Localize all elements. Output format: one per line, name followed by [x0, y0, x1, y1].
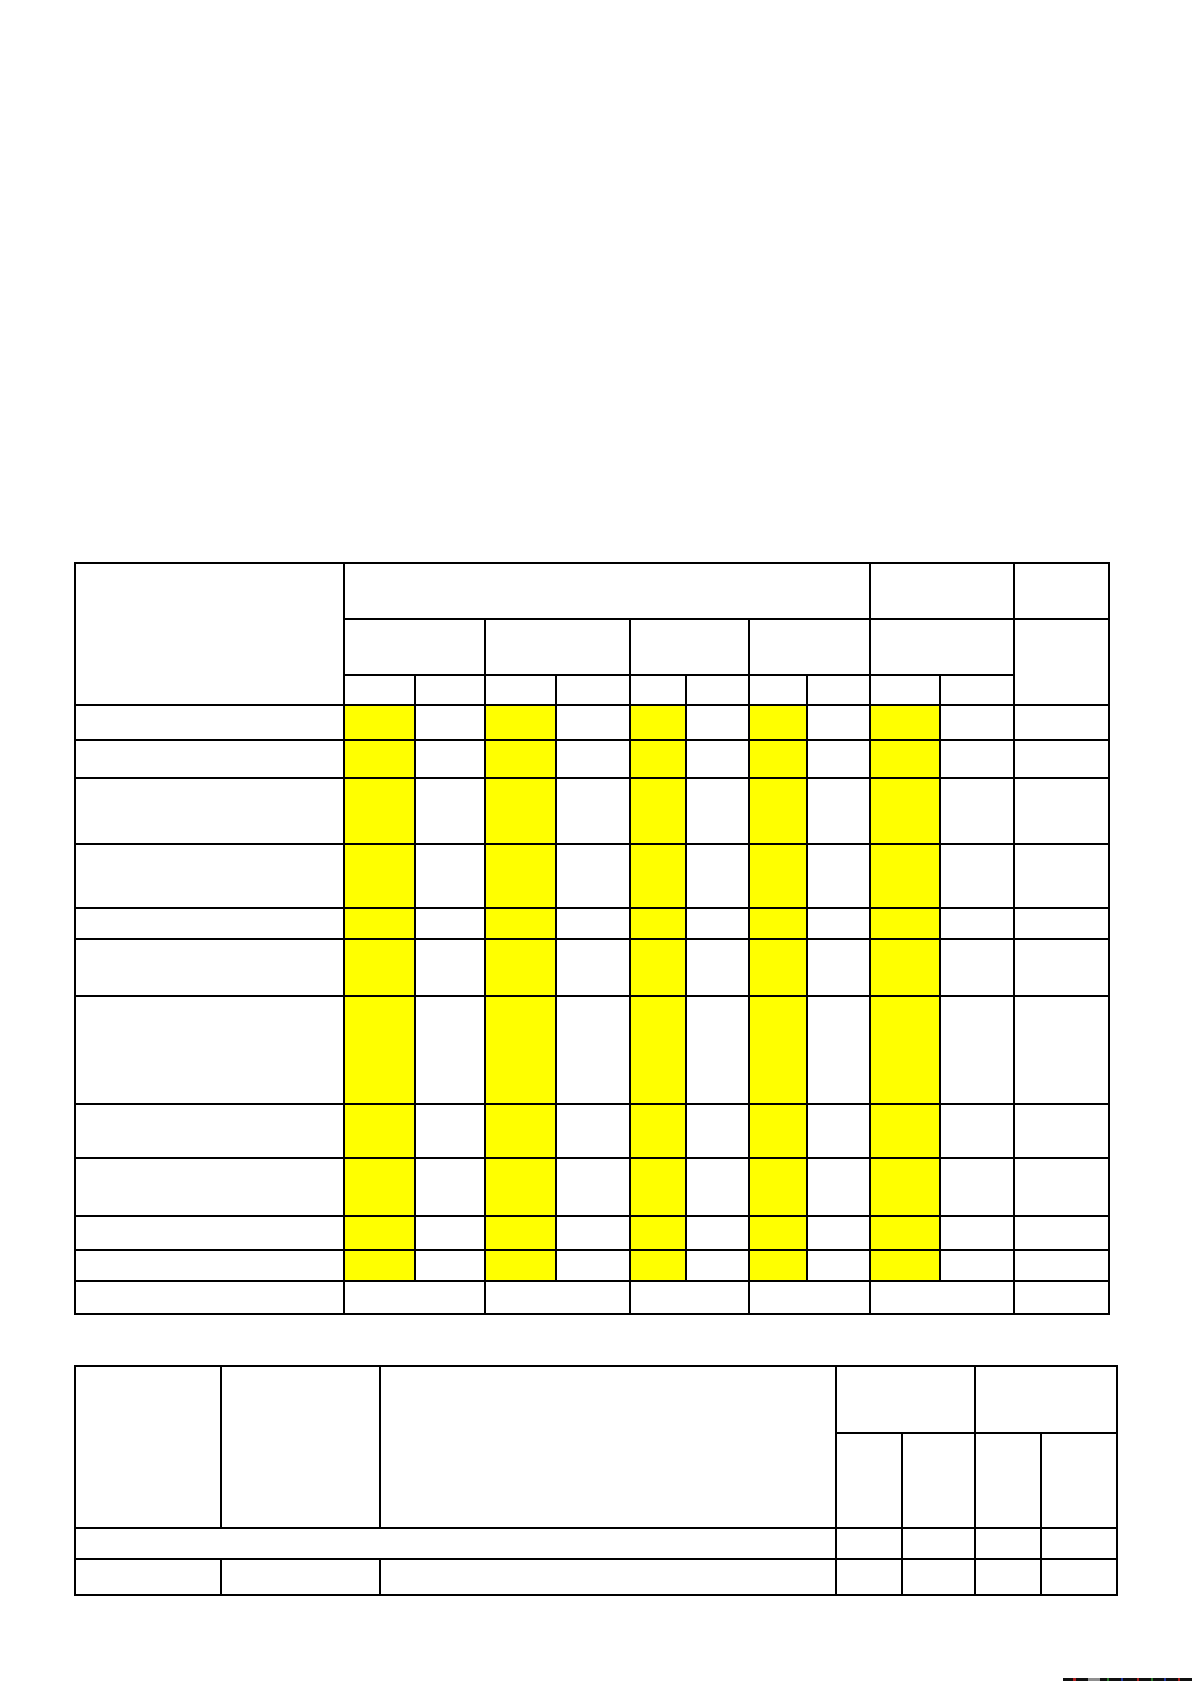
edge-strip-segment: [1137, 1678, 1139, 1681]
empty-cell: [836, 1528, 902, 1559]
empty-cell: [1014, 996, 1109, 1104]
empty-cell: [415, 1216, 485, 1250]
empty-cell: [807, 939, 870, 996]
empty-cell: [75, 1559, 221, 1595]
highlight-cell: [485, 1250, 556, 1281]
empty-cell: [75, 1158, 344, 1216]
empty-cell: [415, 1158, 485, 1216]
empty-cell: [75, 939, 344, 996]
header-cell: [344, 675, 415, 705]
empty-cell: [75, 844, 344, 908]
empty-cell: [902, 1433, 975, 1528]
empty-cell: [836, 1559, 902, 1595]
highlight-cell: [630, 1216, 686, 1250]
highlight-cell: [344, 908, 415, 939]
empty-cell: [940, 908, 1014, 939]
empty-cell: [807, 1250, 870, 1281]
empty-cell: [556, 844, 630, 908]
empty-cell: [807, 778, 870, 844]
edge-strip-segment: [1164, 1678, 1166, 1681]
empty-cell: [415, 1104, 485, 1158]
edge-strip-segment: [1121, 1678, 1123, 1681]
highlight-cell: [344, 1158, 415, 1216]
empty-cell: [686, 1158, 749, 1216]
empty-cell: [556, 778, 630, 844]
empty-cell: [940, 705, 1014, 740]
header-cell: [415, 675, 485, 705]
highlight-cell: [749, 908, 807, 939]
empty-cell: [686, 844, 749, 908]
header-cell: [556, 675, 630, 705]
highlight-cell: [630, 1158, 686, 1216]
highlight-cell: [485, 996, 556, 1104]
highlight-cell: [344, 740, 415, 778]
empty-cell: [75, 908, 344, 939]
highlight-cell: [630, 740, 686, 778]
highlight-cell: [344, 1250, 415, 1281]
header-cell: [485, 619, 630, 675]
empty-cell: [836, 1366, 975, 1433]
highlight-cell: [485, 778, 556, 844]
empty-cell: [221, 1366, 380, 1528]
highlight-cell: [749, 1104, 807, 1158]
empty-cell: [807, 1216, 870, 1250]
empty-cell: [902, 1528, 975, 1559]
highlight-cell: [870, 1158, 940, 1216]
highlight-cell: [749, 705, 807, 740]
empty-cell: [1014, 939, 1109, 996]
empty-cell: [1014, 705, 1109, 740]
edge-strip-segment: [1088, 1678, 1100, 1681]
header-cell: [630, 675, 686, 705]
empty-cell: [749, 1281, 870, 1314]
empty-cell: [556, 740, 630, 778]
empty-cell: [807, 844, 870, 908]
empty-cell: [940, 1158, 1014, 1216]
header-cell: [1014, 563, 1109, 619]
edge-strip-segment: [1178, 1678, 1180, 1681]
header-cell: [807, 675, 870, 705]
empty-cell: [415, 996, 485, 1104]
highlight-cell: [749, 1216, 807, 1250]
empty-cell: [686, 705, 749, 740]
highlight-cell: [749, 996, 807, 1104]
empty-cell: [686, 740, 749, 778]
header-cell: [870, 619, 1014, 675]
empty-cell: [940, 844, 1014, 908]
empty-cell: [686, 1216, 749, 1250]
highlight-cell: [749, 778, 807, 844]
main-grid-table: [74, 562, 1110, 1315]
empty-cell: [556, 1216, 630, 1250]
empty-cell: [556, 1158, 630, 1216]
edge-strip-segment: [1151, 1678, 1153, 1681]
empty-cell: [686, 778, 749, 844]
empty-cell: [1014, 1281, 1109, 1314]
empty-cell: [902, 1559, 975, 1595]
header-cell: [75, 563, 344, 705]
highlight-cell: [749, 939, 807, 996]
highlight-cell: [344, 996, 415, 1104]
header-cell: [344, 563, 870, 619]
empty-cell: [556, 705, 630, 740]
empty-cell: [940, 1104, 1014, 1158]
highlight-cell: [870, 908, 940, 939]
empty-cell: [1014, 1250, 1109, 1281]
empty-cell: [1041, 1528, 1117, 1559]
empty-cell: [415, 939, 485, 996]
highlight-cell: [870, 705, 940, 740]
header-cell: [344, 619, 485, 675]
header-cell: [485, 675, 556, 705]
empty-cell: [940, 996, 1014, 1104]
highlight-cell: [870, 1250, 940, 1281]
highlight-cell: [485, 844, 556, 908]
highlight-cell: [870, 844, 940, 908]
empty-cell: [1014, 1216, 1109, 1250]
empty-cell: [415, 1250, 485, 1281]
empty-cell: [1014, 778, 1109, 844]
highlight-cell: [344, 844, 415, 908]
empty-cell: [630, 1281, 749, 1314]
empty-cell: [415, 778, 485, 844]
highlight-cell: [485, 908, 556, 939]
empty-cell: [975, 1366, 1117, 1433]
highlight-cell: [485, 1104, 556, 1158]
empty-cell: [75, 1104, 344, 1158]
highlight-cell: [749, 1158, 807, 1216]
empty-cell: [686, 1104, 749, 1158]
header-cell: [1014, 619, 1109, 705]
highlight-cell: [870, 778, 940, 844]
empty-cell: [686, 996, 749, 1104]
empty-cell: [1041, 1433, 1117, 1528]
empty-cell: [75, 996, 344, 1104]
header-cell: [749, 675, 807, 705]
edge-strip-segment: [1107, 1678, 1109, 1681]
header-cell: [630, 619, 749, 675]
empty-cell: [1014, 1158, 1109, 1216]
empty-cell: [975, 1559, 1041, 1595]
highlight-cell: [344, 1104, 415, 1158]
empty-cell: [415, 844, 485, 908]
header-cell: [749, 619, 870, 675]
empty-cell: [556, 1104, 630, 1158]
empty-cell: [807, 705, 870, 740]
header-cell: [870, 675, 940, 705]
empty-cell: [940, 1216, 1014, 1250]
highlight-cell: [870, 1104, 940, 1158]
highlight-cell: [749, 740, 807, 778]
header-cell: [686, 675, 749, 705]
empty-cell: [415, 740, 485, 778]
empty-cell: [940, 740, 1014, 778]
highlight-cell: [630, 996, 686, 1104]
empty-cell: [1014, 1104, 1109, 1158]
empty-cell: [975, 1433, 1041, 1528]
empty-cell: [807, 996, 870, 1104]
header-cell: [870, 563, 1014, 619]
highlight-cell: [485, 939, 556, 996]
empty-cell: [75, 705, 344, 740]
empty-cell: [415, 908, 485, 939]
empty-cell: [75, 778, 344, 844]
highlight-cell: [485, 1216, 556, 1250]
empty-cell: [75, 740, 344, 778]
document-page: [0, 0, 1192, 1685]
empty-cell: [1014, 844, 1109, 908]
highlight-cell: [630, 844, 686, 908]
empty-cell: [807, 740, 870, 778]
highlight-cell: [749, 1250, 807, 1281]
highlight-cell: [485, 705, 556, 740]
empty-cell: [344, 1281, 485, 1314]
empty-cell: [556, 996, 630, 1104]
highlight-cell: [870, 740, 940, 778]
header-cell: [940, 675, 1014, 705]
empty-cell: [836, 1433, 902, 1528]
highlight-cell: [870, 996, 940, 1104]
empty-cell: [221, 1559, 380, 1595]
empty-cell: [1014, 908, 1109, 939]
empty-cell: [380, 1366, 836, 1528]
empty-cell: [940, 1250, 1014, 1281]
empty-cell: [940, 778, 1014, 844]
highlight-cell: [870, 939, 940, 996]
empty-cell: [1041, 1559, 1117, 1595]
highlight-cell: [630, 778, 686, 844]
empty-cell: [75, 1216, 344, 1250]
highlight-cell: [630, 939, 686, 996]
empty-cell: [75, 1250, 344, 1281]
highlight-cell: [344, 939, 415, 996]
empty-cell: [556, 939, 630, 996]
empty-cell: [75, 1528, 836, 1559]
highlight-cell: [630, 1104, 686, 1158]
highlight-cell: [749, 844, 807, 908]
edge-strip-segment: [1073, 1678, 1076, 1681]
empty-cell: [75, 1281, 344, 1314]
highlight-cell: [344, 1216, 415, 1250]
highlight-cell: [630, 1250, 686, 1281]
empty-cell: [556, 1250, 630, 1281]
empty-cell: [940, 939, 1014, 996]
empty-cell: [380, 1559, 836, 1595]
empty-cell: [75, 1366, 221, 1528]
empty-cell: [415, 705, 485, 740]
empty-cell: [807, 1104, 870, 1158]
empty-cell: [807, 1158, 870, 1216]
title-block-table: [74, 1365, 1118, 1596]
highlight-cell: [630, 705, 686, 740]
highlight-cell: [485, 1158, 556, 1216]
empty-cell: [686, 908, 749, 939]
empty-cell: [870, 1281, 1014, 1314]
highlight-cell: [485, 740, 556, 778]
empty-cell: [975, 1528, 1041, 1559]
empty-cell: [686, 939, 749, 996]
empty-cell: [556, 908, 630, 939]
empty-cell: [1014, 740, 1109, 778]
empty-cell: [485, 1281, 630, 1314]
empty-cell: [686, 1250, 749, 1281]
highlight-cell: [630, 908, 686, 939]
highlight-cell: [344, 705, 415, 740]
screen-edge-artifact: [1063, 1678, 1192, 1681]
highlight-cell: [344, 778, 415, 844]
empty-cell: [807, 908, 870, 939]
highlight-cell: [870, 1216, 940, 1250]
